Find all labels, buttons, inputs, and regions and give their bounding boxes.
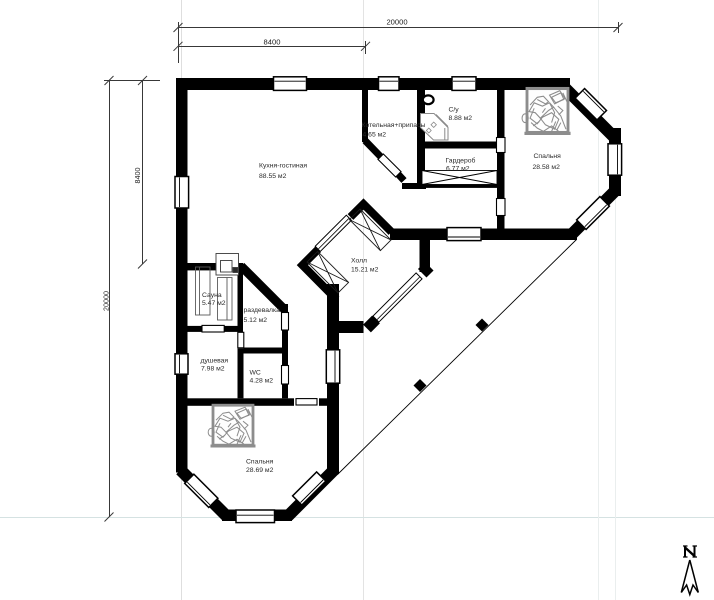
svg-text:28.58 м2: 28.58 м2 — [533, 164, 561, 171]
svg-text:5.47 м2: 5.47 м2 — [202, 300, 226, 307]
svg-text:20000: 20000 — [386, 18, 407, 27]
svg-text:4.65 м2: 4.65 м2 — [363, 132, 387, 139]
svg-text:Котельная+припасы: Котельная+припасы — [362, 122, 426, 129]
svg-text:7.98 м2: 7.98 м2 — [201, 366, 225, 373]
svg-text:Холл: Холл — [351, 258, 367, 265]
svg-text:5.12 м2: 5.12 м2 — [244, 317, 268, 324]
svg-text:4.28 м2: 4.28 м2 — [250, 378, 274, 385]
svg-text:WC: WC — [250, 370, 261, 377]
svg-text:Сауна: Сауна — [202, 292, 222, 299]
svg-text:6.77 м2: 6.77 м2 — [446, 166, 470, 173]
svg-text:Спальня: Спальня — [246, 459, 274, 466]
svg-text:душевая: душевая — [201, 358, 229, 365]
svg-text:Спальня: Спальня — [534, 153, 562, 160]
svg-text:28.69 м2: 28.69 м2 — [246, 467, 274, 474]
svg-text:88.55 м2: 88.55 м2 — [259, 173, 287, 180]
svg-text:8.88 м2: 8.88 м2 — [449, 115, 473, 122]
svg-text:20000: 20000 — [102, 291, 111, 311]
svg-text:раздевалка: раздевалка — [244, 307, 281, 314]
svg-text:Гардероб: Гардероб — [446, 157, 476, 165]
svg-text:15.21 м2: 15.21 м2 — [351, 267, 379, 274]
svg-text:8400: 8400 — [264, 37, 281, 46]
svg-text:8400: 8400 — [133, 168, 142, 184]
svg-text:С/у: С/у — [449, 107, 460, 114]
svg-text:Кухня-гостиная: Кухня-гостиная — [259, 163, 307, 170]
